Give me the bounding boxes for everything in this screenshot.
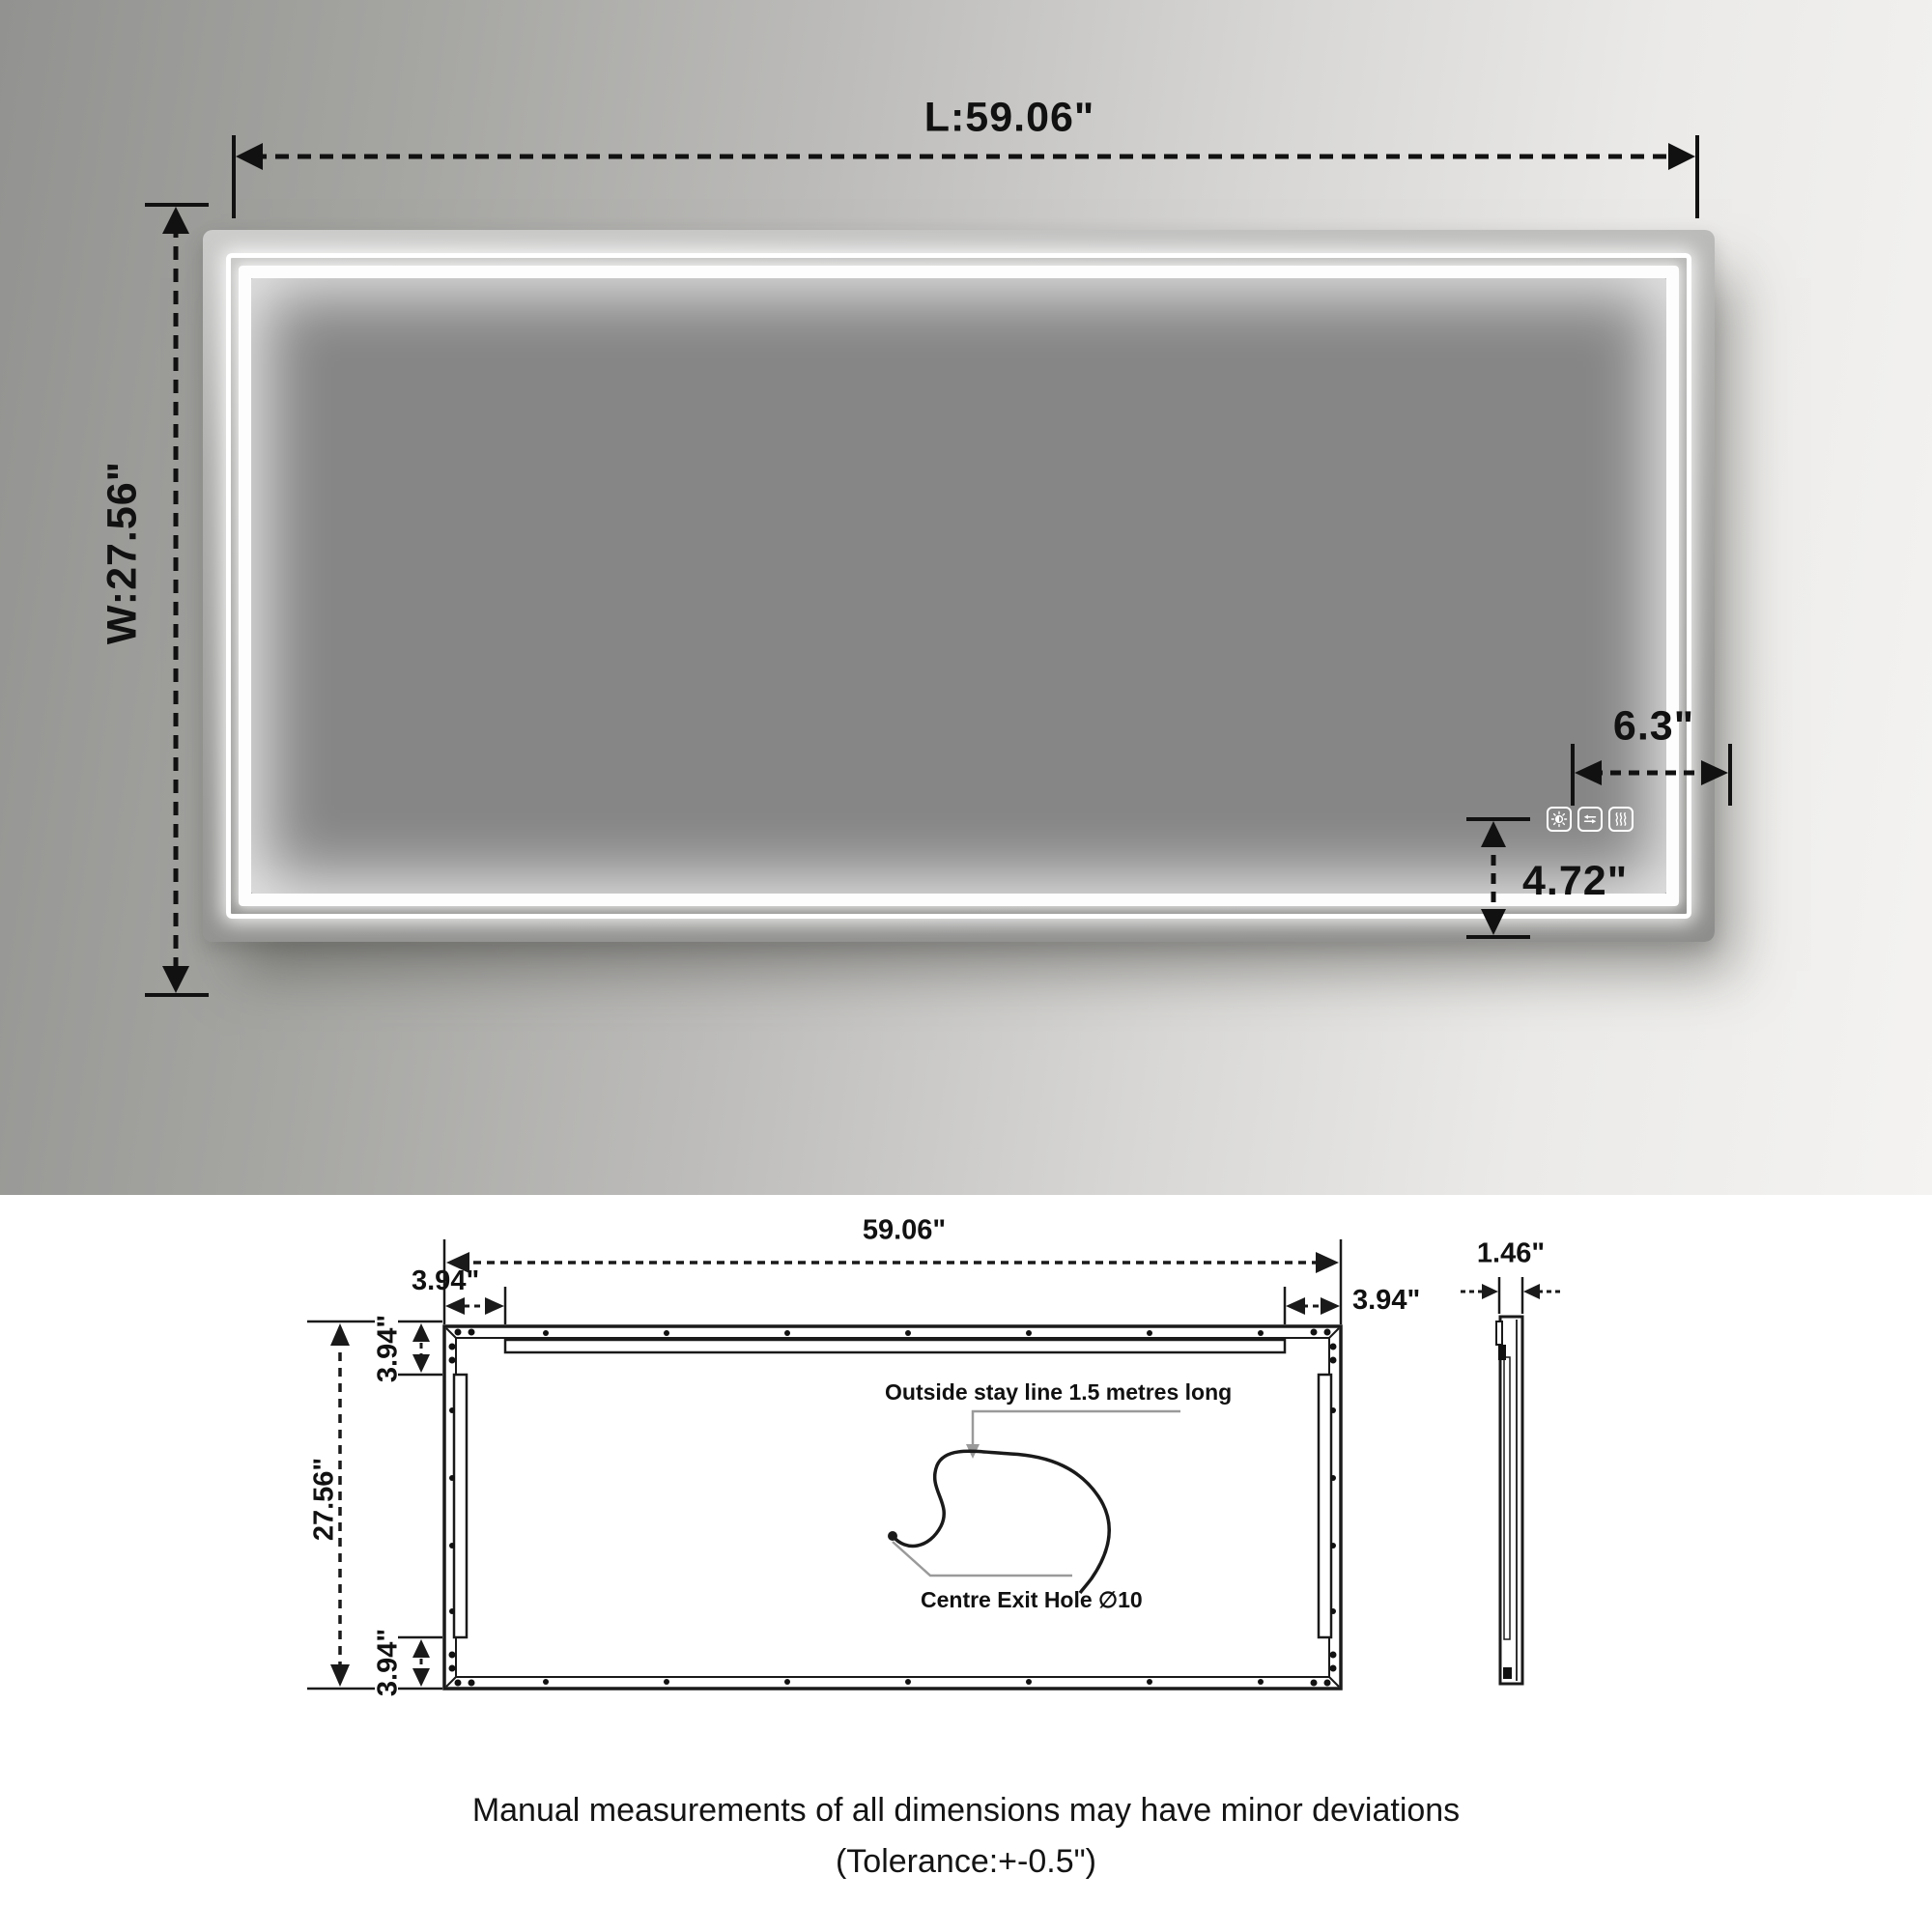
brightness-icon: [1547, 807, 1572, 832]
touch-control-row: [1547, 807, 1634, 832]
drawing-margin-top-label: 3.94": [375, 1315, 403, 1382]
footer-note-line1: Manual measurements of all dimensions ma…: [0, 1792, 1932, 1830]
drawing-margin-left-label: 3.94": [412, 1267, 479, 1295]
defog-icon: [1608, 807, 1634, 832]
color-temperature-icon: [1577, 807, 1603, 832]
length-dim-label: L:59.06": [924, 98, 1095, 139]
footer-note-line2: (Tolerance:+-0.5"): [0, 1843, 1932, 1881]
mirror-frame: [203, 230, 1715, 942]
drawing-length-label: 59.06": [863, 1217, 946, 1245]
controls-offset-x-label: 6.3": [1613, 706, 1694, 748]
drawing-depth-label: 1.46": [1477, 1240, 1545, 1268]
product-dimension-sheet: L:59.06" W:27.56" 6.3" 4.72" 59.06" 3.94…: [0, 0, 1932, 1932]
stay-line-note: Outside stay line 1.5 metres long: [885, 1381, 1232, 1404]
exit-hole-note: Centre Exit Hole ∅10: [921, 1589, 1143, 1611]
drawing-margin-bottom-label: 3.94": [375, 1629, 403, 1696]
photo-section: [0, 0, 1932, 1195]
controls-offset-y-label: 4.72": [1522, 861, 1628, 902]
drawing-height-label: 27.56": [311, 1458, 339, 1541]
drawing-margin-right-label: 3.94": [1352, 1287, 1420, 1315]
mirror-surface: [251, 278, 1666, 894]
width-dim-label: W:27.56": [102, 461, 144, 644]
